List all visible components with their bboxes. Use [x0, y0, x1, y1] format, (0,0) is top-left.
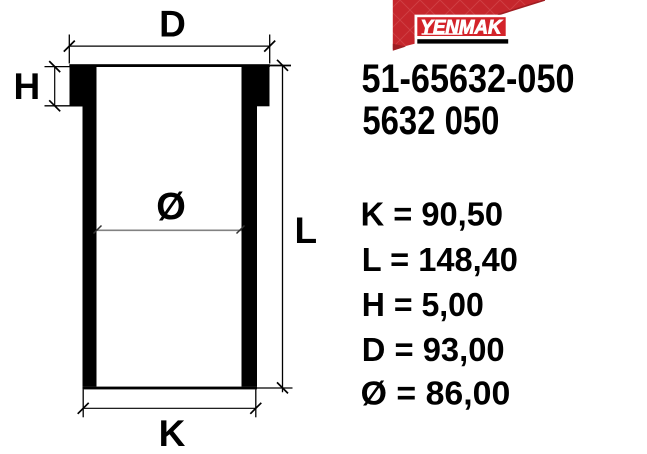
- svg-text:51-65632-050: 51-65632-050: [362, 57, 575, 101]
- svg-text:Ø: Ø: [156, 186, 186, 228]
- svg-text:K = 90,50: K = 90,50: [361, 196, 503, 233]
- svg-text:L = 148,40: L = 148,40: [362, 241, 518, 278]
- svg-text:5632 050: 5632 050: [362, 99, 499, 143]
- svg-text:D: D: [159, 3, 186, 44]
- svg-text:YENMAK: YENMAK: [421, 16, 504, 38]
- svg-text:L: L: [295, 210, 318, 251]
- svg-text:K: K: [159, 413, 186, 454]
- svg-text:Ø = 86,00: Ø = 86,00: [361, 375, 511, 412]
- svg-text:H: H: [14, 66, 41, 107]
- svg-text:D = 93,00: D = 93,00: [362, 331, 505, 368]
- svg-text:H = 5,00: H = 5,00: [362, 286, 484, 323]
